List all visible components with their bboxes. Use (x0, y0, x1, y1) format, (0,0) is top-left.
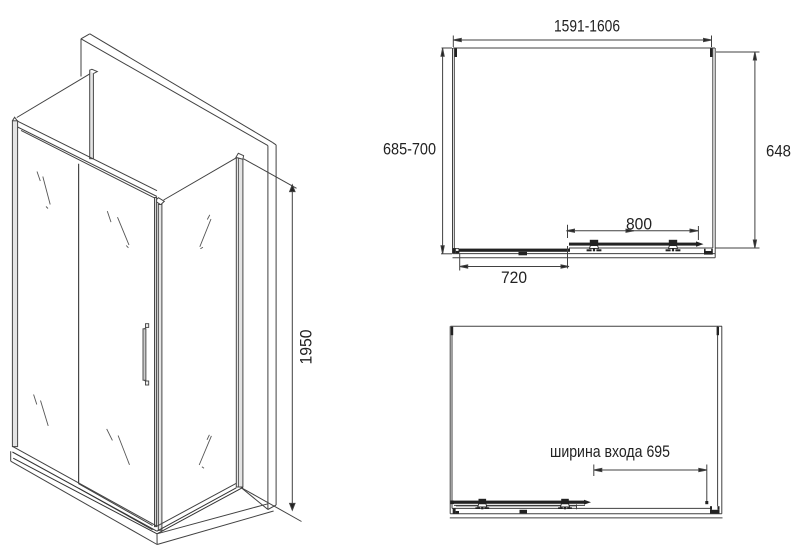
svg-text:1591-1606: 1591-1606 (554, 17, 620, 36)
svg-text:ширина входа 695: ширина входа 695 (550, 442, 670, 461)
svg-text:648: 648 (766, 142, 791, 161)
svg-text:685-700: 685-700 (383, 140, 436, 159)
svg-text:720: 720 (501, 268, 527, 287)
svg-text:1950: 1950 (297, 330, 316, 365)
svg-text:800: 800 (626, 215, 652, 234)
